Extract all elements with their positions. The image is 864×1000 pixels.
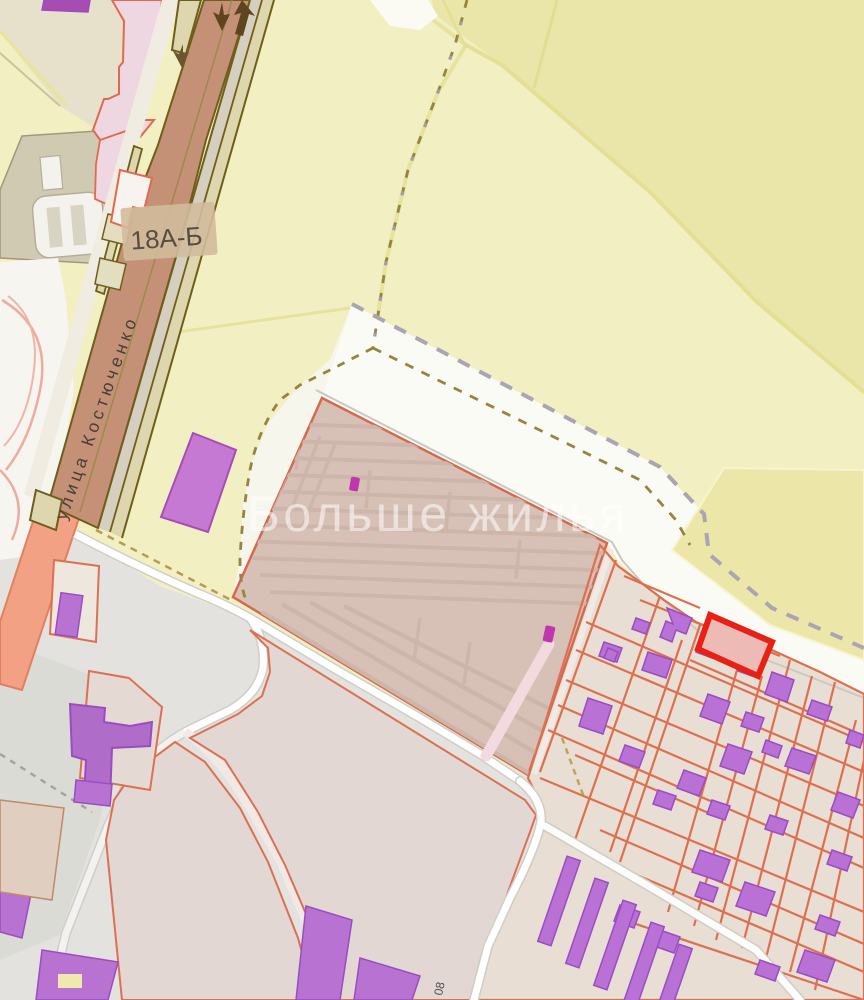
svg-text:18А-Б: 18А-Б xyxy=(130,221,204,256)
svg-text:Больше жилья: Больше жилья xyxy=(247,486,629,542)
